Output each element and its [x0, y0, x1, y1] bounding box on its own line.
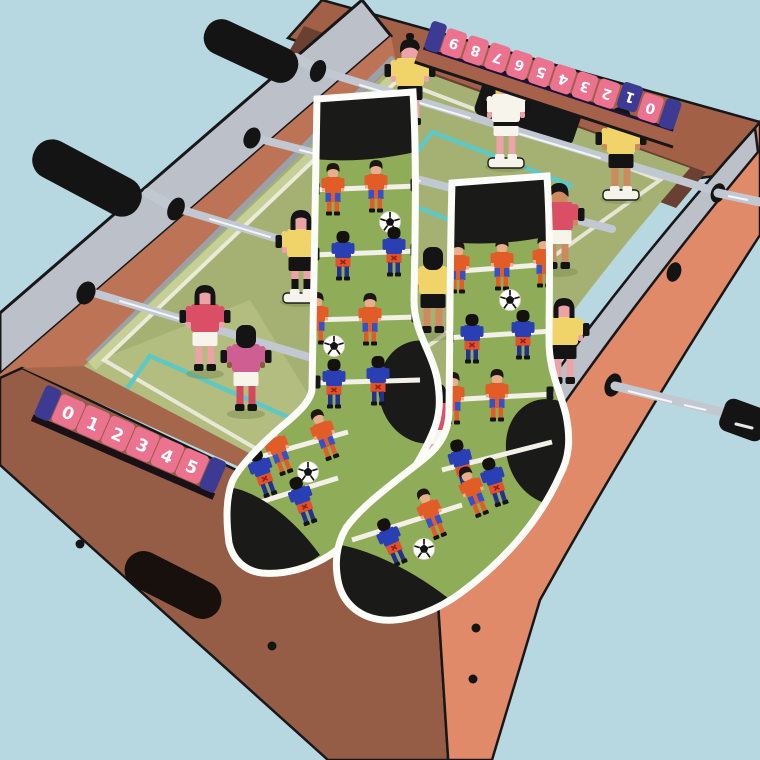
front-screw: [76, 540, 85, 549]
side-screw: [469, 675, 478, 684]
soccer-ball: [324, 336, 345, 357]
front-screw: [268, 642, 277, 651]
side-screw: [472, 624, 481, 633]
soccer-ball: [500, 290, 521, 311]
foosball-scene: 9 8 7 6 5 4 3 2 1 0 0 1 2 3 4 5: [0, 0, 760, 760]
sock-product-illustration: 9 8 7 6 5 4 3 2 1 0 0 1 2 3 4 5: [0, 0, 760, 760]
soccer-ball: [414, 539, 435, 560]
